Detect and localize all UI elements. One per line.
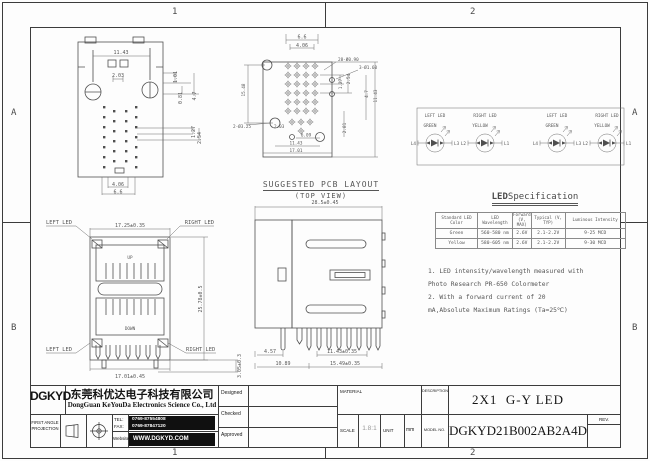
stacked-label-top-left: LEFT LED	[46, 220, 72, 226]
spec-header-row: Standard LED Color LED Wavelength Forwar…	[436, 213, 626, 229]
led4-position: RIGHT LED	[595, 113, 619, 119]
zone-label-right-b: B	[632, 323, 637, 333]
pcb-holes-pins: 28-Ø0.90	[338, 56, 359, 63]
pcb-holes-led: 3-Ø1.60	[359, 64, 378, 71]
led2-pin-left: L2	[461, 141, 467, 147]
led2-position: RIGHT LED	[473, 113, 497, 119]
zone-label-bottom-1: 1	[172, 448, 177, 458]
spec-header-color: Standard LED Color	[436, 213, 478, 229]
front-view-dim-lines	[93, 55, 201, 195]
led-spec-heading-rest: Specification	[508, 192, 578, 204]
spec-header-intensity: Luminous Intensity	[565, 213, 625, 229]
spec-row-green: Green 560-580 nm 2.6V 2.1-2.2V 9-25 MCD	[436, 229, 626, 239]
designed-label: Designed	[221, 390, 242, 396]
zone-tick-left	[2, 222, 30, 223]
spec-cell: 2.6V	[513, 229, 532, 239]
pcb-dim-15-48: 15.48	[241, 83, 247, 96]
drawing-title: 2X1 G-Y LED	[449, 386, 587, 413]
pcb-holes-mount: 2-Ø3.25	[233, 123, 252, 130]
pcb-pad-grid	[285, 63, 319, 135]
led3-position: LEFT LED	[547, 113, 568, 119]
note-line-2: Photo Research PR-650 Colormeter	[428, 278, 648, 291]
scale-label: SCALE	[340, 428, 355, 433]
led-symbol-4: RIGHT LED YELLOW L2 L1	[583, 113, 632, 152]
pcb-title-text: SUGGESTED PCB LAYOUT	[263, 180, 379, 191]
dim-4-06: 4.06	[112, 182, 124, 188]
dim-0-81: 0.81	[178, 92, 184, 104]
led4-pin-left: L2	[583, 141, 589, 147]
led1-pin-right: L3	[454, 141, 460, 147]
model-number: DGKYD21B002AB2A4D	[449, 415, 587, 447]
dim-2-03: 2.03	[112, 73, 124, 79]
led-symbol-2: RIGHT LED YELLOW L2 L1	[461, 113, 510, 152]
led-spec-table: Standard LED Color LED Wavelength Forwar…	[435, 212, 626, 249]
dim-4-7: 4.7	[192, 91, 198, 100]
pcb-dim-11-43: 11.43	[290, 141, 303, 147]
led3-pin-left: L4	[533, 141, 539, 147]
stacked-label-bottom-right: RIGHT LED	[186, 347, 215, 353]
led1-position: LEFT LED	[425, 113, 446, 119]
fax-value: 0769-87847120	[132, 423, 215, 430]
projection-label: FIRST ANGLE PROJECTION	[31, 420, 59, 431]
zone-tick-top	[325, 2, 326, 27]
fax-label: FAX:	[114, 424, 124, 429]
pcb-dim-6-6: 6.6	[297, 35, 306, 41]
pcb-dim-lines	[244, 34, 378, 157]
port-down-label: DOWN	[125, 326, 136, 332]
stacked-dim-leg: 3.05±0.3	[237, 354, 243, 378]
note-line-4: mA,Absolute Maximum Ratings (Ta=25℃)	[428, 304, 648, 317]
led-symbol-1: LEFT LED GREEN L4 L3	[411, 113, 460, 152]
led4-pin-right: L1	[626, 141, 632, 147]
engineering-drawing-sheet: 1 2 1 2 A B A B 11.43	[0, 0, 650, 461]
led4-color: YELLOW	[594, 123, 610, 129]
spec-cell: Yellow	[436, 239, 478, 249]
led2-color: YELLOW	[472, 123, 488, 129]
projection-line-2: PROJECTION	[31, 426, 59, 432]
side-view-drawing: 28.5±0.45 4.57 11.43±0.35 10.89 15.49±0.…	[245, 193, 440, 381]
tel-value: 0769-87554808	[132, 416, 215, 423]
spec-header-forward: Forward (V, MAX)	[513, 213, 532, 229]
side-dim-4-57: 4.57	[264, 349, 276, 355]
website-value: WWW.DGKYD.COM	[129, 433, 215, 446]
note-line-3: 2. With a forward current of 20	[428, 291, 648, 304]
pcb-dim-2-54: 2.54	[346, 73, 352, 84]
port-up-label: UP	[127, 255, 133, 261]
zone-label-left-b: B	[11, 323, 16, 333]
led-circuit-border	[417, 108, 624, 165]
led1-pin-left: L4	[411, 141, 417, 147]
zone-label-right-a: A	[632, 108, 637, 118]
pin-pads	[103, 106, 137, 168]
stacked-label-top-right: RIGHT LED	[185, 220, 214, 226]
spec-cell: 2.1-2.2V	[531, 239, 565, 249]
side-view-body	[255, 220, 385, 350]
projection-line-1: FIRST ANGLE	[31, 420, 59, 426]
led-circuit-diagram: LEFT LED GREEN L4 L3 RIGHT LED YELLOW L2…	[416, 105, 630, 169]
pcb-dim-4-7: 4.7	[364, 90, 370, 98]
spec-row-yellow: Yellow 580-605 nm 2.6V 2.1-2.2V 9-30 MCD	[436, 239, 626, 249]
side-dim-depth: 28.5±0.45	[311, 200, 338, 206]
material-label: MATERIAL	[340, 389, 362, 394]
dim-11-43: 11.43	[113, 50, 128, 56]
spec-cell: 9-25 MCD	[565, 229, 625, 239]
note-line-1: 1. LED intensity/wavelength measured wit…	[428, 265, 648, 278]
pcb-dim-2-03: 2.03	[274, 124, 285, 130]
dim-2-54: 2.54	[197, 132, 203, 144]
zone-label-left-a: A	[11, 108, 16, 118]
zone-tick-bottom	[325, 448, 326, 459]
pcb-dim-6-09: 6.09	[301, 133, 312, 139]
side-dim-11-43: 11.43±0.35	[327, 349, 357, 355]
unit-value: mm	[406, 427, 414, 433]
projection-symbol-side	[66, 425, 78, 438]
stacked-label-bottom-left: LEFT LED	[46, 347, 72, 353]
scale-value: 1.8:1	[359, 425, 380, 432]
side-dim-10-89: 10.89	[275, 361, 290, 367]
pcb-dim-11-43-r: 11.43	[373, 89, 379, 102]
unit-label: UNIT	[383, 428, 394, 433]
approved-label: Approved	[221, 432, 242, 438]
pcb-layout-drawing: 6.6 4.06 28-Ø0.90 3-Ø1.60 1.27 2.54 4.7 …	[232, 32, 397, 172]
pcb-dim-17-01: 17.01	[290, 148, 303, 154]
zone-label-bottom-2: 2	[470, 448, 475, 458]
description-label: DESCRIPTION	[422, 389, 448, 393]
tel-label: TEL:	[114, 417, 124, 422]
spec-cell: 2.6V	[513, 239, 532, 249]
pcb-dim-4-06: 4.06	[296, 43, 308, 49]
zone-label-top-1: 1	[172, 7, 177, 17]
led-spec-heading: LED Specification	[437, 184, 633, 206]
website-label: Website	[113, 436, 129, 441]
spec-header-wavelength: LED Wavelength	[478, 213, 513, 229]
front-view-drawing: 11.43 2.03 1.01 0.81 4.7 1.27 2.54 4.06 …	[75, 36, 207, 202]
dim-6-6: 6.6	[113, 190, 122, 196]
spec-cell: 2.1-2.2V	[531, 229, 565, 239]
notes-block: 1. LED intensity/wavelength measured wit…	[428, 265, 648, 317]
pcb-dim-2-81: 2.81	[342, 122, 348, 133]
stacked-dim-height: 25.78±0.5	[198, 285, 204, 312]
company-name-cn: 东莞科优达电子科技有限公司	[67, 386, 217, 402]
spec-cell: 580-605 nm	[478, 239, 513, 249]
model-label: MODEL NO.	[421, 428, 448, 432]
tel-fax-values: 0769-87554808 0769-87847120	[129, 416, 215, 430]
stacked-dim-width-bottom: 17.01±0.45	[115, 374, 145, 380]
led3-color: GREEN	[546, 123, 559, 129]
stacked-dim-width-top: 17.25±0.35	[115, 223, 145, 229]
led1-color: GREEN	[424, 123, 437, 129]
spec-cell: Green	[436, 229, 478, 239]
led-spec-heading-lead: LED	[492, 192, 508, 204]
company-name-en: DongGuan KeYouDa Electronics Science Co.…	[64, 401, 220, 409]
led3-pin-right: L3	[576, 141, 582, 147]
pcb-dim-1-27: 1.27	[338, 78, 344, 89]
dim-1-01: 1.01	[173, 71, 179, 83]
checked-label: Checked	[221, 411, 241, 417]
led2-pin-right: L1	[504, 141, 510, 147]
led-symbol-3: LEFT LED GREEN L4 L3	[533, 113, 582, 152]
projection-symbol-front	[90, 422, 108, 440]
side-view-dim-lines	[255, 206, 382, 369]
side-dim-15-49: 15.49±0.35	[330, 361, 360, 367]
spec-cell: 9-30 MCD	[565, 239, 625, 249]
spec-header-typical: Typical (V, TYP)	[531, 213, 565, 229]
zone-label-top-2: 2	[470, 7, 475, 17]
spec-cell: 560-580 nm	[478, 229, 513, 239]
rev-label: REV.	[588, 417, 620, 422]
company-logo: DGKYD	[30, 389, 66, 403]
